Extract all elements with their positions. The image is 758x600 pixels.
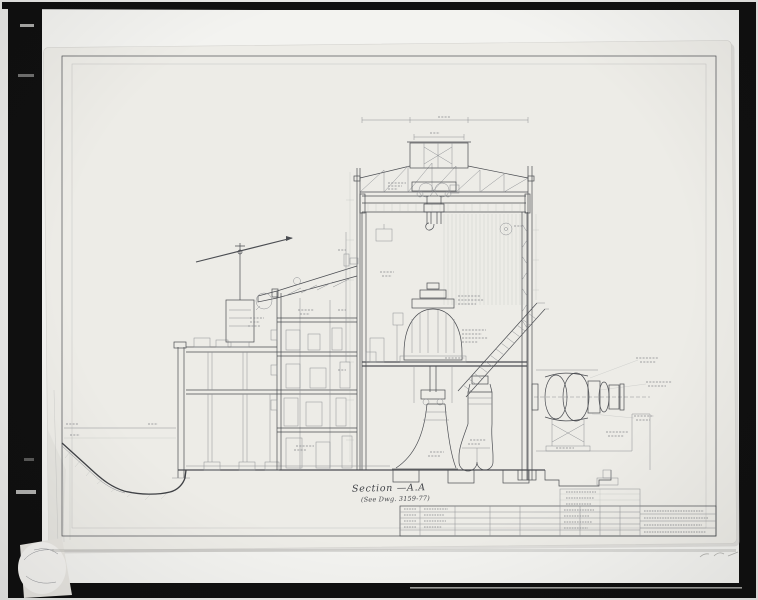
film-edge-line [410,587,742,589]
film-edge-mark [16,490,36,494]
film-edge-mark [18,74,34,77]
sheet-bottom-shadow [52,549,736,552]
archival-photo-of-drawing: Section —A.A (See Dwg. 3159-77) [0,0,758,600]
film-edge-mark [20,24,34,27]
caption-subtitle: (See Dwg. 3159-77) [361,494,430,503]
sheet-paper [43,40,736,550]
film-edge-mark [24,458,34,461]
photo-collage [0,0,758,600]
caption-title: Section —A.A [352,482,426,495]
drawing-sheet [18,40,740,598]
